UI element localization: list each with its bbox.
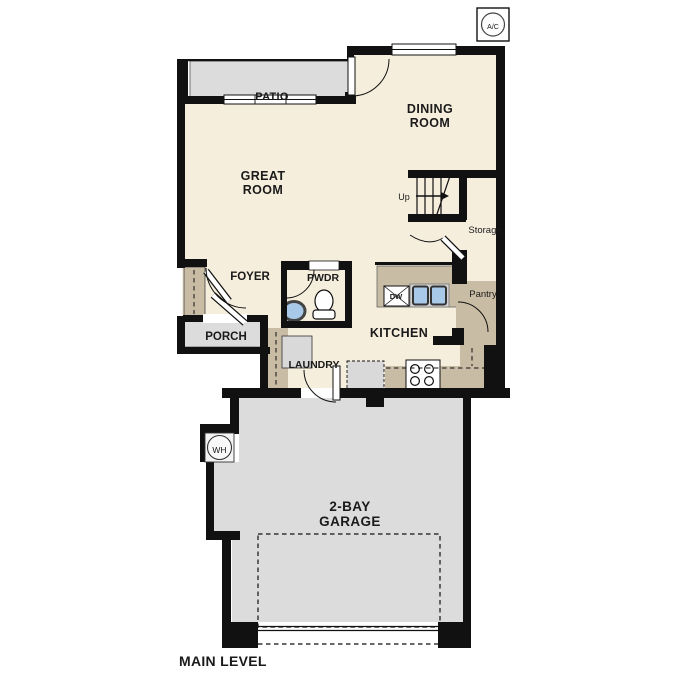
great-room-label: GREAT ROOM bbox=[241, 169, 286, 197]
stove bbox=[406, 360, 440, 390]
great-room-label-line1: GREAT bbox=[241, 169, 286, 183]
refrigerator bbox=[347, 361, 384, 390]
plan-title: MAIN LEVEL bbox=[179, 654, 267, 668]
floor-plan: PATIO DINING ROOM GREAT ROOM Up Storage … bbox=[0, 0, 687, 687]
sink-bowl bbox=[413, 287, 428, 305]
wh-label: WH bbox=[212, 443, 226, 457]
porch-label: PORCH bbox=[205, 330, 247, 344]
garage-label: 2-BAY GARAGE bbox=[319, 499, 381, 529]
dining-room-label-line1: DINING bbox=[407, 102, 453, 116]
great-room-label-line2: ROOM bbox=[241, 183, 286, 197]
patio-label: PATIO bbox=[255, 90, 288, 104]
garage-label-line1: 2-BAY bbox=[319, 499, 381, 514]
ac-label: A/C bbox=[487, 21, 499, 35]
up-label: Up bbox=[398, 190, 410, 204]
patio-door-leaf bbox=[348, 57, 355, 95]
sink-bowl bbox=[431, 287, 446, 305]
toilet-tank bbox=[313, 310, 335, 319]
kitchen-label: KITCHEN bbox=[370, 326, 428, 340]
laundry-label: LAUNDRY bbox=[289, 358, 340, 372]
pwdr-label: PWDR bbox=[307, 271, 339, 285]
dining-room-label-line2: ROOM bbox=[407, 116, 453, 130]
floor-plan-drawing bbox=[0, 0, 687, 687]
dining-room-label: DINING ROOM bbox=[407, 102, 453, 130]
dishwasher-label: DW bbox=[390, 290, 403, 304]
pantry-label: Pantry bbox=[469, 288, 496, 302]
storage-label: Storage bbox=[468, 224, 501, 238]
garage-label-line2: GARAGE bbox=[319, 514, 381, 529]
foyer-label: FOYER bbox=[230, 270, 270, 284]
toilet-bowl bbox=[315, 290, 333, 312]
pwdr-door bbox=[309, 261, 339, 270]
